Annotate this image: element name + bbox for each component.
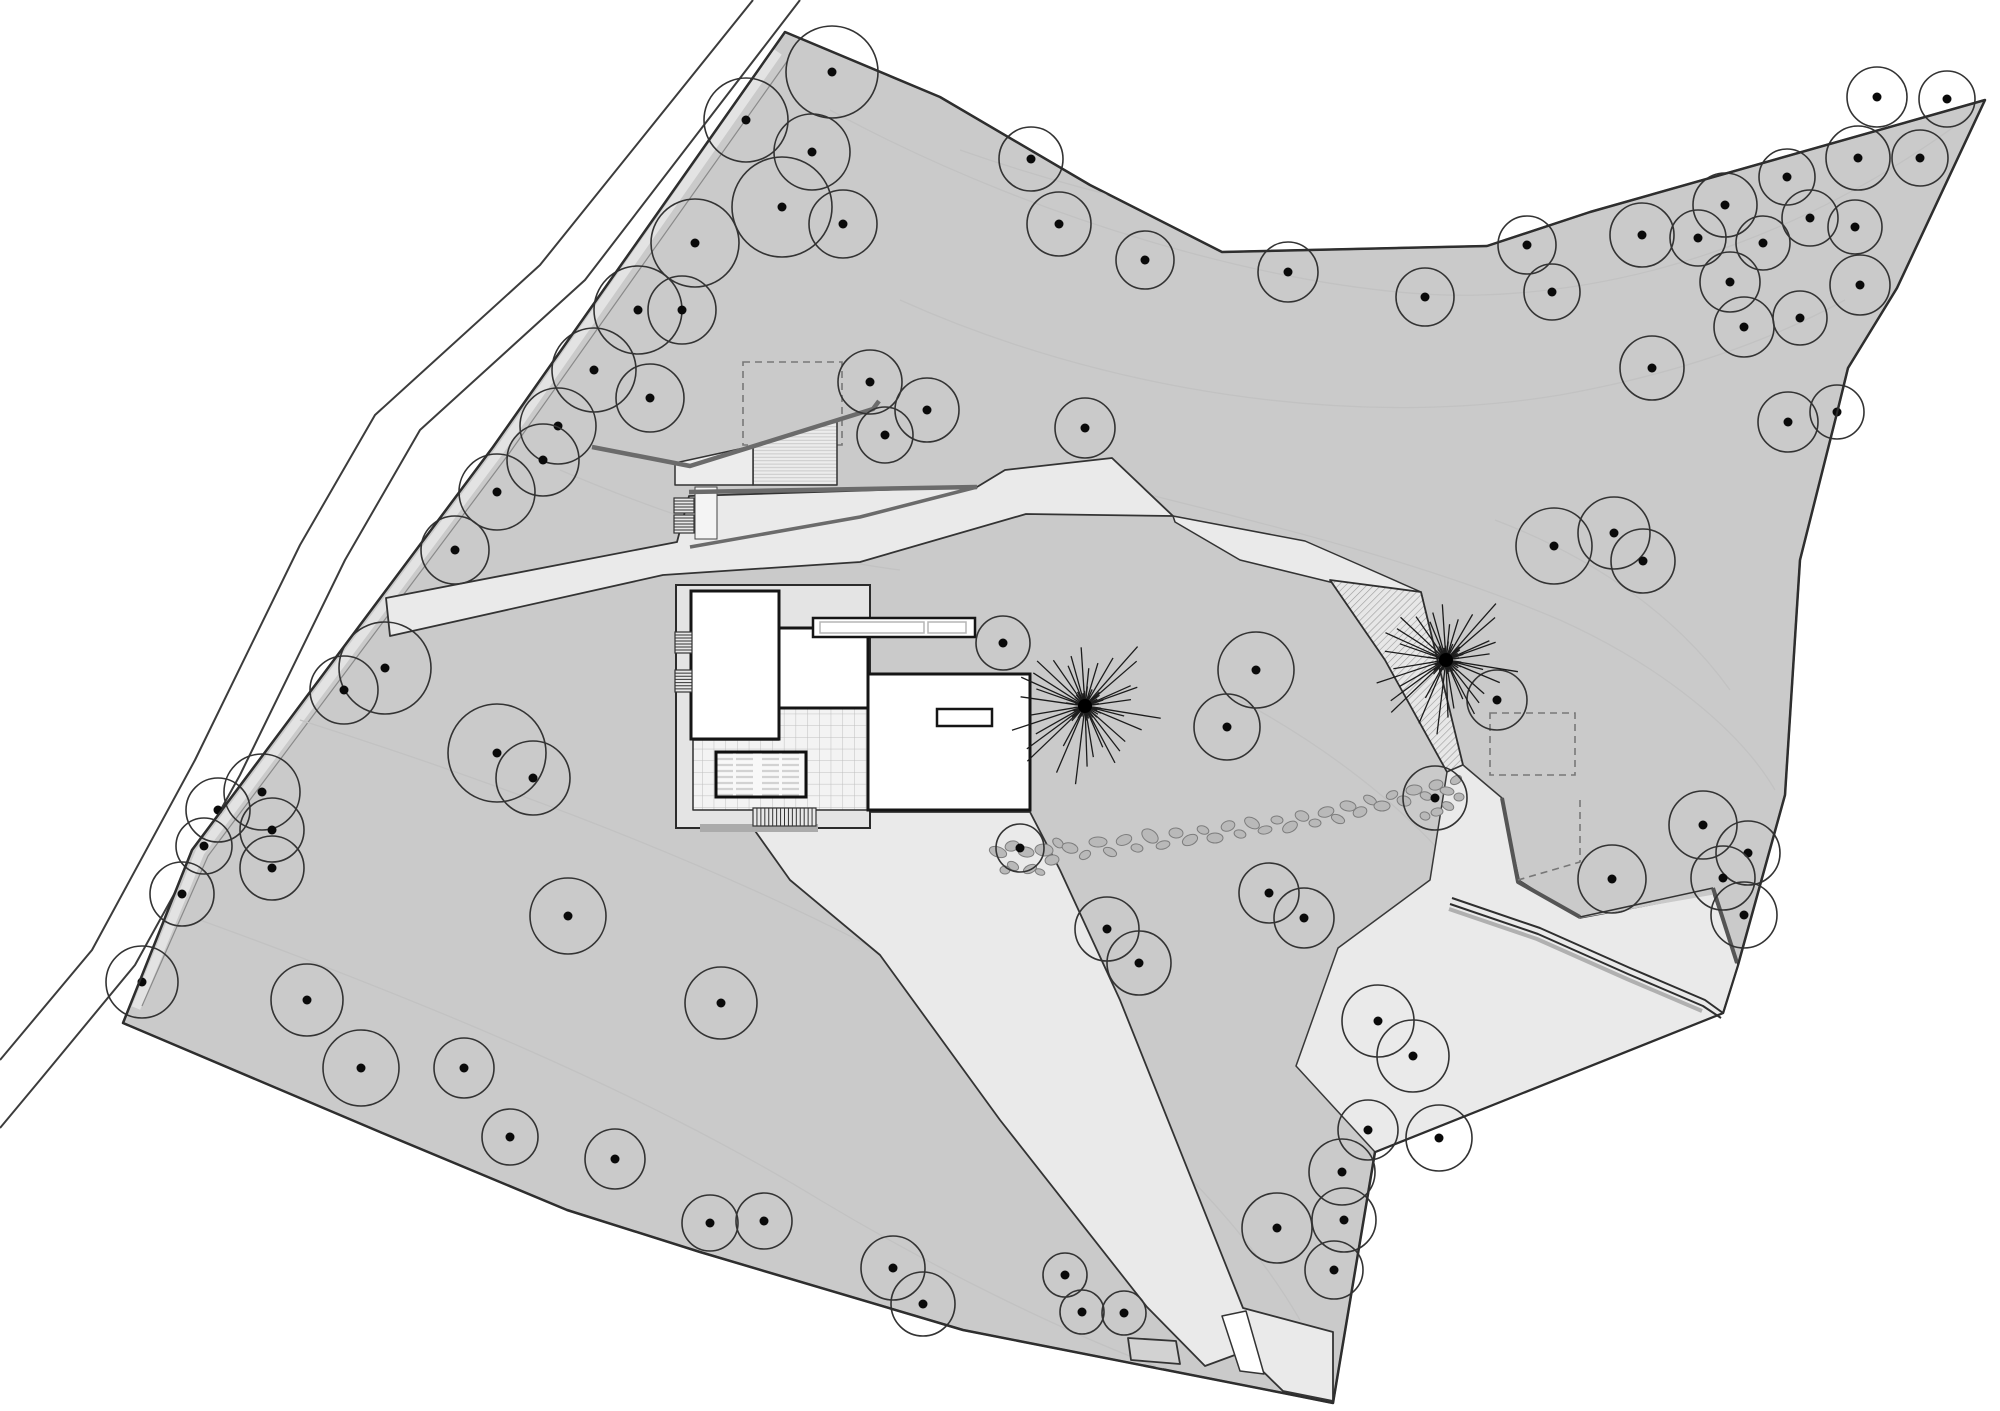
tree-trunk-dot: [1856, 281, 1865, 290]
tree-trunk-dot: [178, 890, 187, 899]
tree-trunk-dot: [1273, 1224, 1282, 1233]
feature-tree-trunk: [1439, 653, 1453, 667]
rock: [1089, 837, 1107, 847]
swimming-pool: [716, 752, 806, 797]
tree-trunk-dot: [1081, 424, 1090, 433]
tree-trunk-dot: [1409, 1052, 1418, 1061]
tree-trunk-dot: [1548, 288, 1557, 297]
house-roof-middle: [779, 628, 868, 708]
tree-trunk-dot: [760, 1217, 769, 1226]
tree-trunk-dot: [268, 826, 277, 835]
tree-trunk-dot: [1740, 323, 1749, 332]
tree-trunk-dot: [1638, 231, 1647, 240]
tree-trunk-dot: [1016, 844, 1025, 853]
tree-trunk-dot: [706, 1219, 715, 1228]
tree-trunk-dot: [1873, 93, 1882, 102]
tree-trunk-dot: [1523, 241, 1532, 250]
tree-trunk-dot: [1726, 278, 1735, 287]
tree-trunk-dot: [889, 1264, 898, 1273]
tree-trunk-dot: [919, 1300, 928, 1309]
tree-trunk-dot: [1135, 959, 1144, 968]
tree-trunk-dot: [1639, 557, 1648, 566]
roof-skylight: [937, 709, 992, 726]
tree-trunk-dot: [1721, 201, 1730, 210]
tree-trunk-dot: [1719, 874, 1728, 883]
tree-trunk-dot: [1550, 542, 1559, 551]
tree-trunk-dot: [1421, 293, 1430, 302]
rock: [1309, 819, 1321, 827]
house-roof-southeast: [868, 674, 1030, 810]
tree-trunk-dot: [1364, 1126, 1373, 1135]
tree-trunk-dot: [529, 774, 538, 783]
tree-trunk-dot: [1078, 1308, 1087, 1317]
tree-trunk-dot: [881, 431, 890, 440]
tree-trunk-dot: [493, 749, 502, 758]
tree-trunk-dot: [1610, 529, 1619, 538]
tree-trunk-dot: [646, 394, 655, 403]
tree-trunk-dot: [1055, 220, 1064, 229]
tree-trunk-dot: [460, 1064, 469, 1073]
tree-trunk-dot: [1943, 95, 1952, 104]
stairs-west-upper: [675, 632, 692, 653]
tree-trunk-dot: [1806, 214, 1815, 223]
tree-trunk-dot: [1252, 666, 1261, 675]
tree-trunk-dot: [1648, 364, 1657, 373]
tree-trunk-dot: [258, 788, 267, 797]
house-roof-southeast: [868, 674, 1030, 810]
site-plan-drawing: [0, 0, 2000, 1411]
tree-trunk-dot: [1854, 154, 1863, 163]
tree-trunk-dot: [839, 220, 848, 229]
tree-trunk-dot: [778, 203, 787, 212]
tree-trunk-dot: [381, 664, 390, 673]
plan-layers: [0, 0, 1985, 1403]
stairs-west-lower: [675, 670, 692, 692]
tree-trunk-dot: [1374, 1017, 1383, 1026]
glazed-wall-panel-b: [928, 622, 966, 633]
tree-trunk-dot: [268, 864, 277, 873]
tree-trunk-dot: [303, 996, 312, 1005]
tree-trunk-dot: [340, 686, 349, 695]
tree-trunk-dot: [1699, 821, 1708, 830]
site-area: [123, 32, 1985, 1403]
roof-skylight: [937, 709, 992, 726]
tree-trunk-dot: [357, 1064, 366, 1073]
tree-trunk-dot: [200, 842, 209, 851]
tree-trunk-dot: [1223, 723, 1232, 732]
tree-trunk-dot: [564, 912, 573, 921]
tree-trunk-dot: [1851, 223, 1860, 232]
site-plan-page: [0, 0, 2000, 1411]
tree-trunk-dot: [1796, 314, 1805, 323]
tree-trunk-dot: [1103, 925, 1112, 934]
tree-trunk-dot: [1784, 418, 1793, 427]
tree-trunk-dot: [1694, 234, 1703, 243]
tree-trunk-dot: [1783, 173, 1792, 182]
stair-landing: [695, 487, 717, 539]
tree-trunk-dot: [451, 546, 460, 555]
glazed-wall-panel-a: [820, 622, 924, 633]
tree-trunk-dot: [923, 406, 932, 415]
tree-trunk-dot: [808, 148, 817, 157]
tree-trunk-dot: [999, 639, 1008, 648]
glazed-wall-panel-a: [820, 622, 924, 633]
swimming-pool: [716, 752, 806, 797]
tree-trunk-dot: [1027, 155, 1036, 164]
tree-trunk-dot: [1300, 914, 1309, 923]
tree-trunk-dot: [691, 239, 700, 248]
tree-trunk-dot: [1744, 849, 1753, 858]
stairs-terrace-south: [753, 808, 816, 826]
site-area: [123, 32, 1985, 1403]
tree-trunk-dot: [1338, 1168, 1347, 1177]
tree-trunk-dot: [1759, 239, 1768, 248]
house-roof-middle: [779, 628, 868, 708]
stairs-north-upper: [674, 498, 694, 513]
tree-trunk-dot: [590, 366, 599, 375]
glazed-wall-panel-b: [928, 622, 966, 633]
tree-trunk-dot: [493, 488, 502, 497]
stairs-north-lower: [674, 515, 694, 533]
house-roof-northwest: [691, 591, 779, 739]
tree-trunk-dot: [742, 116, 751, 125]
tree-trunk-dot: [1330, 1266, 1339, 1275]
tree-trunk-dot: [1120, 1309, 1129, 1318]
tree-trunk-dot: [634, 306, 643, 315]
tree-trunk-dot: [717, 999, 726, 1008]
tree-trunk-dot: [1265, 889, 1274, 898]
tree-trunk-dot: [1061, 1271, 1070, 1280]
rock: [1374, 801, 1390, 811]
tree-trunk-dot: [828, 68, 837, 77]
tree-trunk-dot: [866, 378, 875, 387]
rock: [1207, 833, 1223, 843]
tree-trunk-dot: [539, 456, 548, 465]
tree-trunk-dot: [1740, 911, 1749, 920]
tree-trunk-dot: [1340, 1216, 1349, 1225]
rock: [1454, 793, 1464, 801]
tree-trunk-dot: [1608, 875, 1617, 884]
feature-tree-trunk: [1078, 699, 1092, 713]
tree-trunk-dot: [678, 306, 687, 315]
tree-trunk-dot: [611, 1155, 620, 1164]
house-roof-northwest: [691, 591, 779, 739]
stairs-north-upper: [674, 498, 694, 513]
stair-landing: [695, 487, 717, 539]
tree-trunk-dot: [1493, 696, 1502, 705]
tree-trunk-dot: [1284, 268, 1293, 277]
driveway-retaining-wedge: [1128, 1338, 1180, 1364]
driveway-retaining-wedge: [1128, 1338, 1180, 1364]
tree-trunk-dot: [1141, 256, 1150, 265]
tree-trunk-dot: [1431, 794, 1440, 803]
tree-trunk-dot: [1916, 154, 1925, 163]
tree-trunk-dot: [1435, 1134, 1444, 1143]
tree-trunk-dot: [506, 1133, 515, 1142]
